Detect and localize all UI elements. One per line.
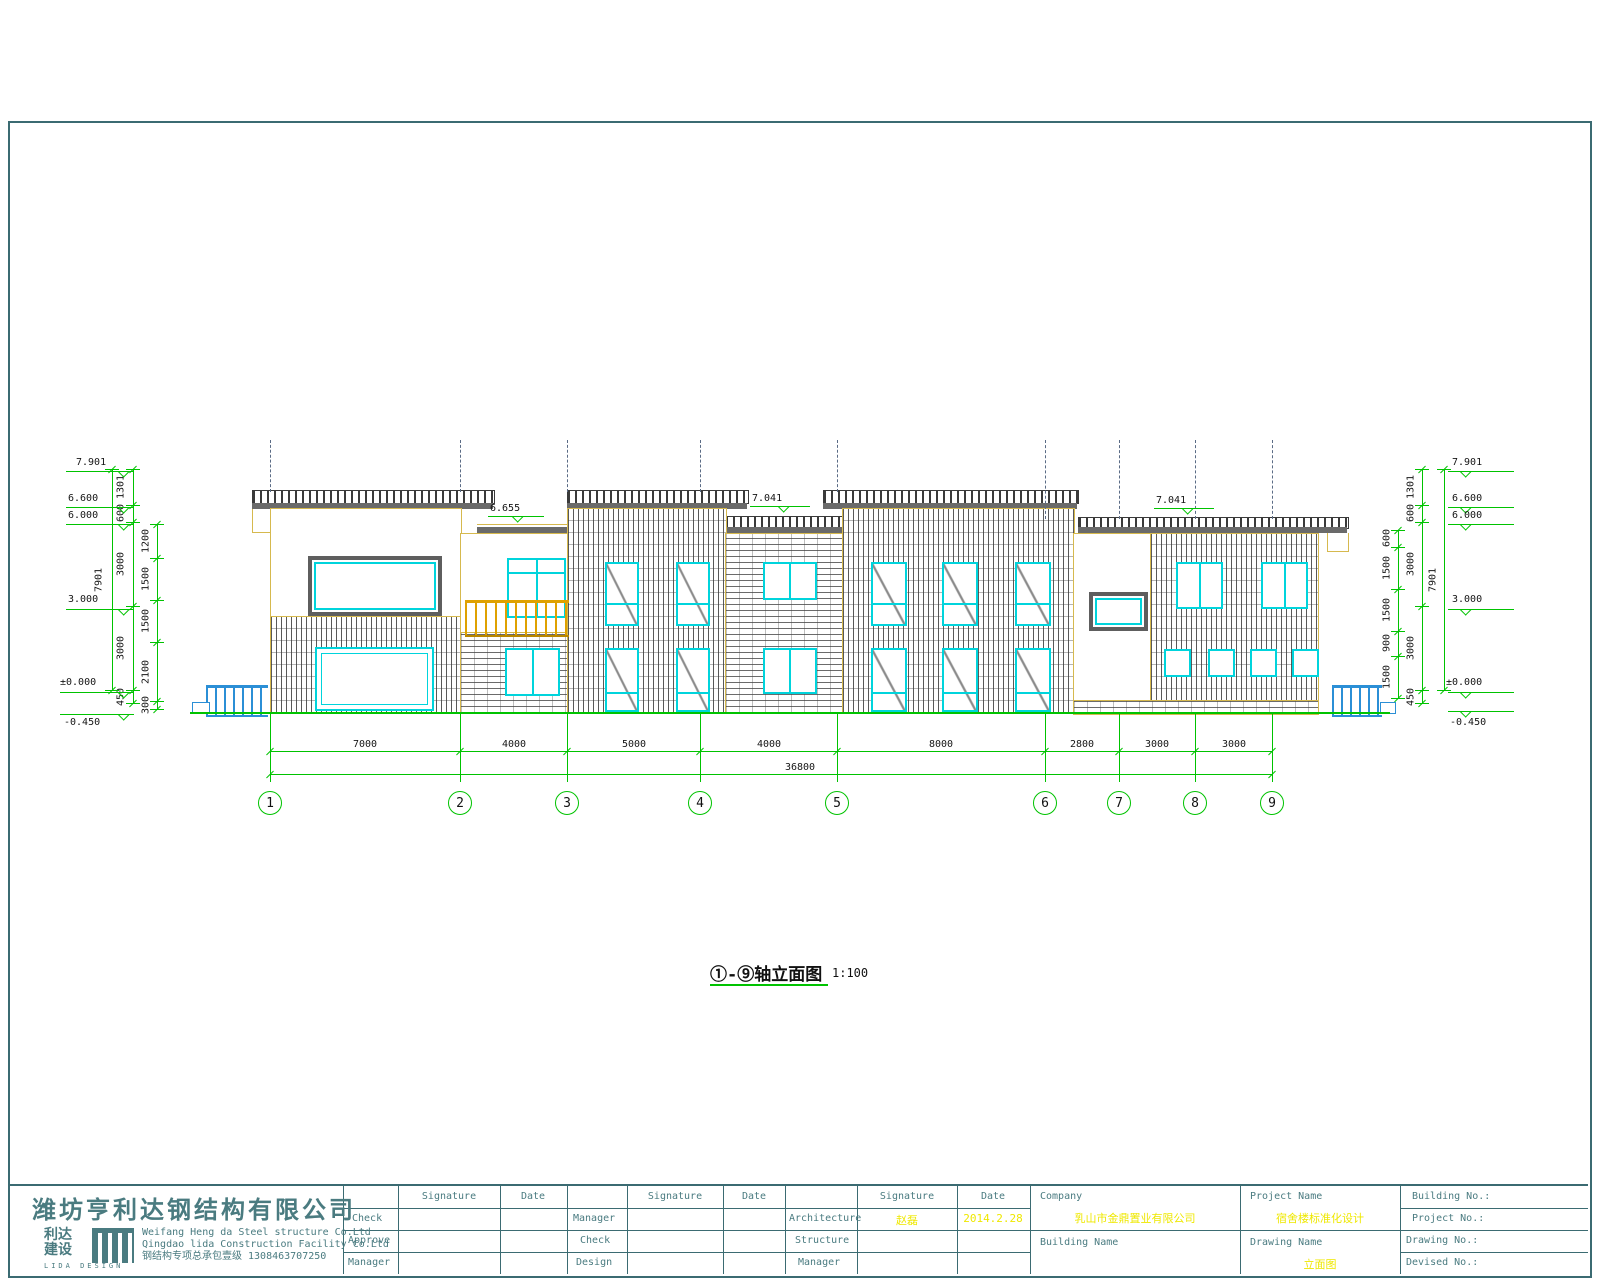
row-architecture: Architecture: [789, 1213, 861, 1224]
dim-bottom-8: 3000: [1222, 739, 1246, 750]
dim-chain-label: 1200: [141, 529, 152, 553]
row-manager-3: Manager: [798, 1257, 840, 1268]
balcony-railing: [465, 600, 569, 637]
axis-bubble-3: 3: [555, 791, 579, 815]
window-5-6-lower-2: [942, 648, 978, 712]
devised-no-label: Devised No.:: [1406, 1257, 1478, 1268]
dim-bottom-5: 8000: [929, 739, 953, 750]
dim-chain-label: 3000: [1406, 552, 1417, 576]
company-label: Company: [1040, 1191, 1082, 1202]
dim-chain-label: 1500: [1382, 665, 1393, 689]
level-text: 6.600: [1452, 493, 1482, 504]
window-5-6-lower-3: [1015, 648, 1051, 712]
axis-bubble-2: 2: [448, 791, 472, 815]
roof-coping-1-2: [252, 490, 495, 504]
window-7-9-upper-2: [1261, 562, 1308, 609]
axis-dashed-line-3: [567, 440, 568, 492]
header-signature-3: Signature: [880, 1191, 934, 1202]
dim-chain-line: [1444, 469, 1445, 690]
axis-number-8: 8: [1191, 796, 1199, 811]
drawing-title: ①-⑨轴立面图: [710, 960, 822, 985]
architect-date: 2014.2.28: [963, 1212, 1023, 1225]
axis-number-5: 5: [833, 796, 841, 811]
window-3-4-upper-2: [676, 562, 710, 626]
drawing-sheet: ①-⑨轴立面图 1:100 Signature Date Signature D…: [0, 0, 1600, 1280]
logo-text-2: 建设: [44, 1243, 72, 1258]
dim-chain-label: 1500: [141, 567, 152, 591]
window-mullion: [789, 564, 791, 598]
project-no-label: Project No.:: [1412, 1213, 1484, 1224]
header-date-1: Date: [521, 1191, 545, 1202]
axis-bubble-7: 7: [1107, 791, 1131, 815]
architect-signature: 赵磊: [896, 1212, 918, 1228]
titleblock-line: [343, 1208, 1030, 1209]
window-mullion: [789, 650, 791, 692]
project-name-label: Project Name: [1250, 1191, 1322, 1202]
axis-bubble-8: 8: [1183, 791, 1207, 815]
drawing-no-label: Drawing No.:: [1406, 1235, 1478, 1246]
axis-number-2: 2: [456, 796, 464, 811]
window-3-4-lower-1: [605, 648, 639, 712]
window-transom: [678, 692, 708, 694]
window-transom: [607, 692, 637, 694]
header-date-3: Date: [981, 1191, 1005, 1202]
window-tower-upper: [763, 562, 817, 600]
window-transom: [873, 692, 905, 694]
window-transom: [1017, 603, 1049, 605]
dim-chain-line: [112, 469, 113, 690]
titleblock-line: [1400, 1252, 1588, 1253]
dim-chain-label: 1301: [1406, 475, 1417, 499]
axis-bubble-4: 4: [688, 791, 712, 815]
axis-bubble-1: 1: [258, 791, 282, 815]
dim-chain-label: 1500: [141, 609, 152, 633]
window-mullion: [532, 650, 534, 694]
level-text: ±0.000: [60, 677, 96, 688]
axis-dashed-line-1: [270, 440, 271, 492]
dim-bottom-3: 5000: [622, 739, 646, 750]
project-name-value: 宿舍楼标准化设计: [1276, 1210, 1364, 1226]
window-5-6-upper-3: [1015, 562, 1051, 626]
logo-text-1: 利达: [44, 1228, 72, 1243]
window-transom: [678, 603, 708, 605]
window-7-9-small-3: [1250, 649, 1277, 677]
window-mullion: [1199, 564, 1201, 607]
row-structure: Structure: [795, 1235, 849, 1246]
axis-dashed-line-7: [1119, 440, 1120, 519]
dim-chain-label: 600: [1382, 529, 1393, 547]
window-transom: [944, 603, 976, 605]
window-3-4-lower-2: [676, 648, 710, 712]
dim-total: 36800: [785, 762, 815, 773]
window-5-6-lower-1: [871, 648, 907, 712]
window-1-2-lower: [315, 647, 434, 711]
axis-dashed-line-2: [460, 440, 461, 492]
window-6-7: [1089, 592, 1148, 631]
title-underline: [710, 984, 828, 986]
window-7-9-upper-1: [1176, 562, 1223, 609]
axis-number-3: 3: [563, 796, 571, 811]
level-text: 6.000: [1452, 510, 1482, 521]
dim-chain-label: 2100: [141, 660, 152, 684]
logo-sub-text: LIDA DESIGN: [44, 1262, 123, 1270]
dim-bottom-2: 4000: [502, 739, 526, 750]
row-manager-1: Manager: [348, 1257, 390, 1268]
window-glass: [321, 653, 428, 705]
dim-chain-label: 3000: [1406, 636, 1417, 660]
window-7-9-small-4: [1292, 649, 1319, 677]
window-mullion: [1284, 564, 1286, 607]
axis-dashed-line-5: [837, 440, 838, 492]
building-no-label: Building No.:: [1412, 1191, 1490, 1202]
dim-chain-label: 600: [1406, 504, 1417, 522]
titleblock-line: [343, 1252, 1030, 1253]
header-signature-2: Signature: [648, 1191, 702, 1202]
roof-level-mid: 7.041: [752, 493, 782, 504]
window-transom: [607, 603, 637, 605]
dim-chain-label: 300: [141, 696, 152, 714]
window-glass: [1095, 598, 1142, 625]
roof-level-right: 7.041: [1156, 495, 1186, 506]
level-line: [1448, 711, 1514, 712]
dim-line-bays: [270, 751, 1272, 752]
drawing-scale: 1:100: [832, 966, 868, 980]
dim-chain-label: 3000: [116, 636, 127, 660]
axis-number-1: 1: [266, 796, 274, 811]
roof-notch-right: [1327, 533, 1349, 552]
level-text: -0.450: [64, 717, 100, 728]
axis-dashed-line-4: [700, 440, 701, 492]
dim-chain-label: 7901: [1428, 568, 1439, 592]
window-tower-lower: [763, 648, 817, 694]
level-text: 3.000: [68, 594, 98, 605]
header-date-2: Date: [742, 1191, 766, 1202]
dim-chain-line: [157, 524, 158, 709]
level-text: 6.000: [68, 510, 98, 521]
level-text: 3.000: [1452, 594, 1482, 605]
axis-bubble-9: 9: [1260, 791, 1284, 815]
level-line: [1448, 507, 1514, 508]
dim-bottom-7: 3000: [1145, 739, 1169, 750]
dim-chain-label: 900: [1382, 634, 1393, 652]
roof-coping-5-6: [823, 490, 1079, 504]
window-2-3-lower: [505, 648, 560, 696]
axis-dashed-line-6: [1045, 440, 1046, 519]
window-7-9-small-2: [1208, 649, 1235, 677]
level-text: 6.600: [68, 493, 98, 504]
axis-dashed-line-9: [1272, 440, 1273, 519]
level-line: [1448, 524, 1514, 525]
drawing-name-value: 立面图: [1304, 1256, 1337, 1272]
level-text: ±0.000: [1446, 677, 1482, 688]
dim-chain-label: 1301: [116, 475, 127, 499]
designer-cn-line3: 钢结构专项总承包壹级 1308463707250: [142, 1251, 326, 1263]
door-transom: [509, 572, 564, 574]
row-design: Design: [576, 1257, 612, 1268]
window-5-6-upper-1: [871, 562, 907, 626]
drawing-name-label: Drawing Name: [1250, 1237, 1322, 1248]
axis-number-6: 6: [1041, 796, 1049, 811]
axis-number-7: 7: [1115, 796, 1123, 811]
ground-line: [190, 712, 1390, 714]
window-transom: [944, 692, 976, 694]
lida-logo-icon: [92, 1228, 134, 1263]
titleblock-line: [343, 1230, 1588, 1231]
axis-bubble-5: 5: [825, 791, 849, 815]
dim-bottom-6: 2800: [1070, 739, 1094, 750]
dim-line-total: [270, 774, 1272, 775]
dim-bottom-4: 4000: [757, 739, 781, 750]
level-line: [1448, 609, 1514, 610]
level-text: -0.450: [1450, 717, 1486, 728]
row-manager-2: Manager: [573, 1213, 615, 1224]
window-glass: [314, 562, 436, 610]
window-3-4-upper-1: [605, 562, 639, 626]
window-transom: [1017, 692, 1049, 694]
dim-chain-label: 7901: [94, 568, 105, 592]
window-transom: [873, 603, 905, 605]
roof-coping-3-4: [567, 490, 749, 504]
axis-number-9: 9: [1268, 796, 1276, 811]
axis-bubble-6: 6: [1033, 791, 1057, 815]
level-line: [1448, 692, 1514, 693]
company-value: 乳山市金鼎置业有限公司: [1075, 1210, 1196, 1226]
titleblock-top-border: [8, 1184, 1588, 1186]
designer-en-line2: Qingdao lida Construction Facility Co.Lt…: [142, 1239, 389, 1251]
designer-company-name: 潍坊亨利达钢结构有限公司: [32, 1190, 356, 1225]
building-name-label: Building Name: [1040, 1237, 1118, 1248]
row-check-2: Check: [580, 1235, 610, 1246]
header-signature-1: Signature: [422, 1191, 476, 1202]
designer-en-line1: Weifang Heng da Steel structure Co.Ltd: [142, 1227, 371, 1239]
dim-chain-label: 1500: [1382, 556, 1393, 580]
axis-number-4: 4: [696, 796, 704, 811]
level-line: [1448, 471, 1514, 472]
row-check: Check: [352, 1213, 382, 1224]
window-5-6-upper-2: [942, 562, 978, 626]
window-7-9-small-1: [1164, 649, 1191, 677]
dim-chain-line: [1398, 530, 1399, 698]
level-text: 7.901: [76, 457, 106, 468]
dim-chain-label: 450: [1406, 688, 1417, 706]
dim-chain-label: 1500: [1382, 598, 1393, 622]
dim-chain-label: 3000: [116, 552, 127, 576]
titleblock-line: [1400, 1208, 1588, 1209]
level-text: 7.901: [1452, 457, 1482, 468]
window-1-2-upper: [308, 556, 442, 616]
dim-bottom-1: 7000: [353, 739, 377, 750]
